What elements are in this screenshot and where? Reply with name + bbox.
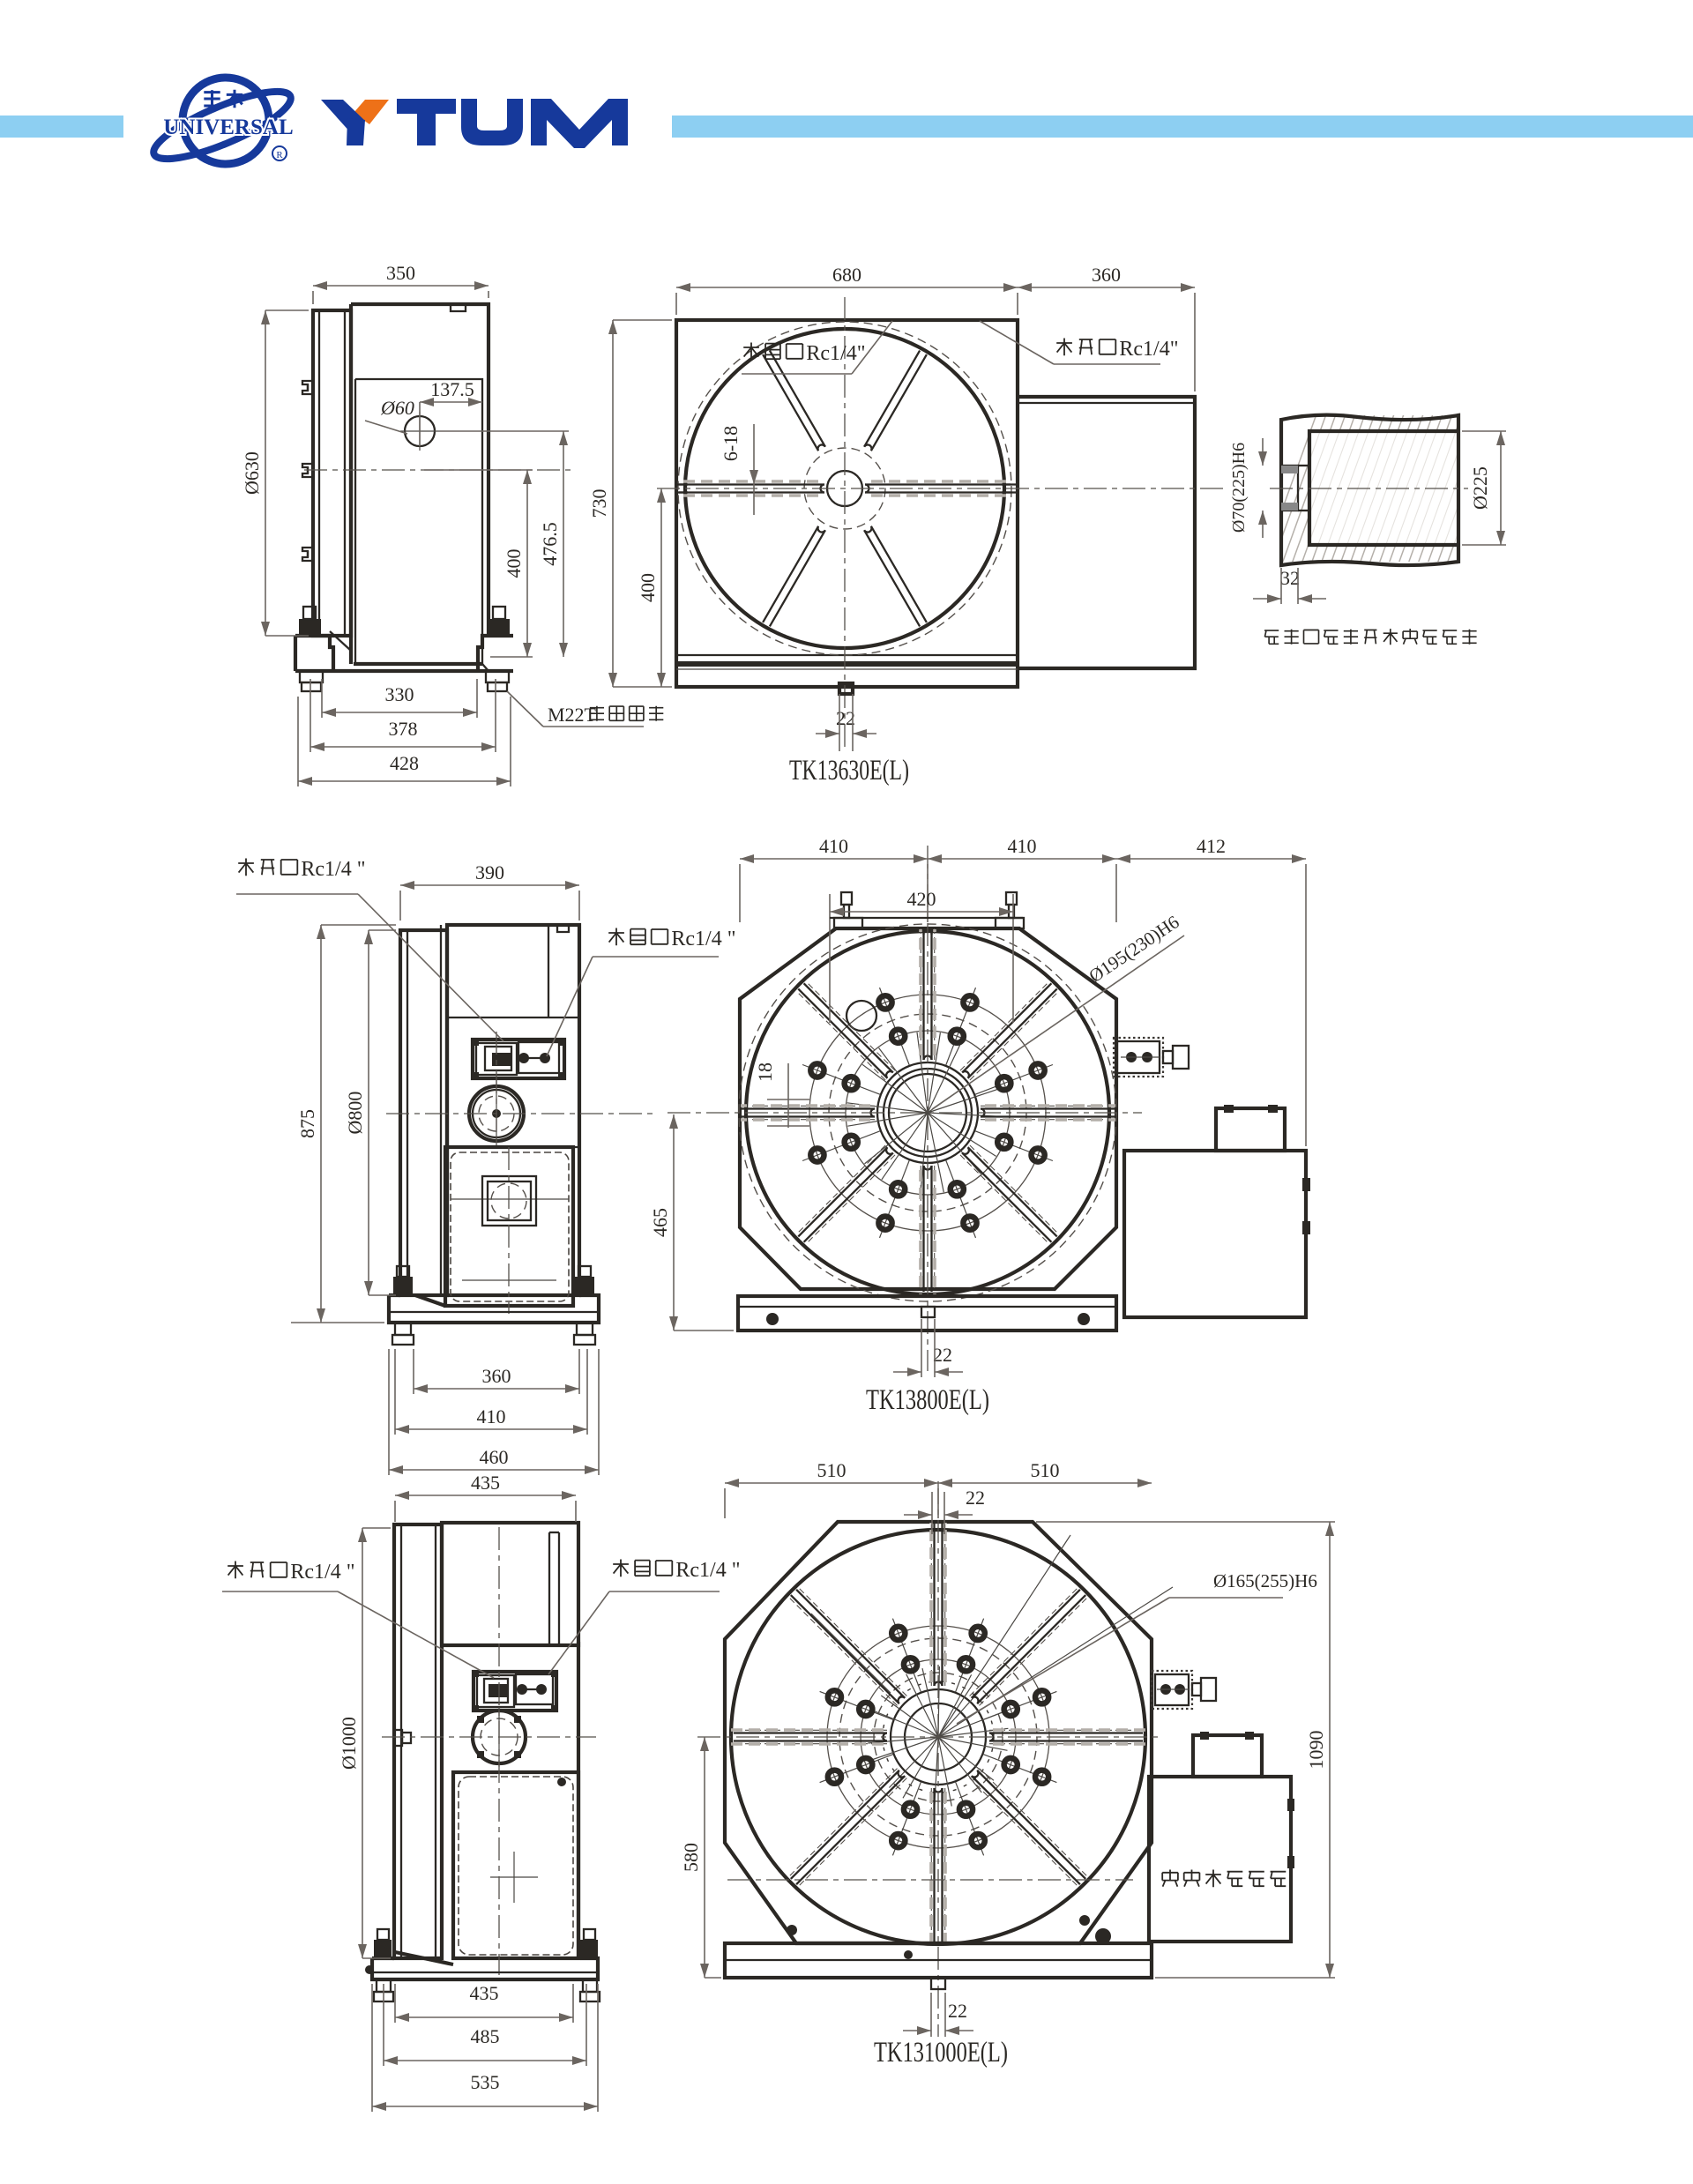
svg-text:Rc1/4": Rc1/4" [806,342,865,365]
svg-text:412: 412 [1197,835,1226,857]
svg-text:18: 18 [754,1062,776,1082]
svg-text:510: 510 [1031,1459,1060,1481]
svg-text:400: 400 [503,549,525,578]
svg-text:Rc1/4 ": Rc1/4 " [301,858,365,881]
svg-text:Rc1/4 ": Rc1/4 " [675,1559,740,1582]
svg-text:Ø165(255)H6: Ø165(255)H6 [1213,1570,1317,1591]
svg-text:Ø800: Ø800 [344,1092,366,1135]
svg-text:465: 465 [649,1208,671,1237]
svg-text:680: 680 [832,264,861,286]
svg-text:TK13800E(L): TK13800E(L) [866,1384,989,1416]
svg-text:510: 510 [817,1459,846,1481]
svg-text:460: 460 [480,1446,509,1468]
svg-text:Ø1000: Ø1000 [338,1717,360,1770]
svg-text:22: 22 [948,2000,967,2022]
svg-text:330: 330 [385,683,414,705]
svg-text:400: 400 [637,573,659,602]
svg-text:6-18: 6-18 [720,426,742,461]
svg-text:875: 875 [296,1109,318,1138]
svg-text:TK131000E(L): TK131000E(L) [874,2037,1008,2068]
svg-text:390: 390 [475,861,504,883]
svg-text:Rc1/4 ": Rc1/4 " [671,928,735,950]
svg-text:476.5: 476.5 [539,522,561,566]
svg-text:Ø60: Ø60 [380,397,414,419]
svg-text:32: 32 [1280,567,1300,589]
svg-text:435: 435 [471,1472,500,1494]
svg-text:378: 378 [389,718,418,740]
svg-text:410: 410 [819,835,848,857]
svg-text:730: 730 [588,489,610,518]
svg-text:22: 22 [966,1487,985,1509]
svg-text:410: 410 [1008,835,1037,857]
svg-text:428: 428 [390,752,419,774]
svg-text:Rc1/4 ": Rc1/4 " [290,1561,354,1584]
svg-text:360: 360 [482,1365,511,1387]
svg-text:M22T: M22T [548,704,597,726]
svg-text:435: 435 [470,1982,499,2004]
svg-text:Ø70(225)H6: Ø70(225)H6 [1229,443,1249,533]
svg-text:Ø630: Ø630 [241,451,263,495]
svg-text:350: 350 [386,262,415,284]
svg-text:UNIVERSAL: UNIVERSAL [163,116,293,139]
svg-text:1090: 1090 [1305,1731,1327,1770]
svg-text:420: 420 [907,888,936,910]
svg-text:22: 22 [933,1344,952,1366]
svg-text:535: 535 [471,2071,500,2093]
svg-text:Rc1/4": Rc1/4" [1119,338,1178,361]
svg-text:485: 485 [471,2025,500,2047]
svg-text:TK13630E(L): TK13630E(L) [789,755,909,786]
svg-text:Ø225: Ø225 [1469,466,1491,510]
svg-text:580: 580 [680,1843,702,1872]
svg-text:R: R [276,150,283,160]
svg-text:137.5: 137.5 [430,378,474,400]
svg-text:410: 410 [477,1405,506,1427]
svg-text:360: 360 [1092,264,1121,286]
